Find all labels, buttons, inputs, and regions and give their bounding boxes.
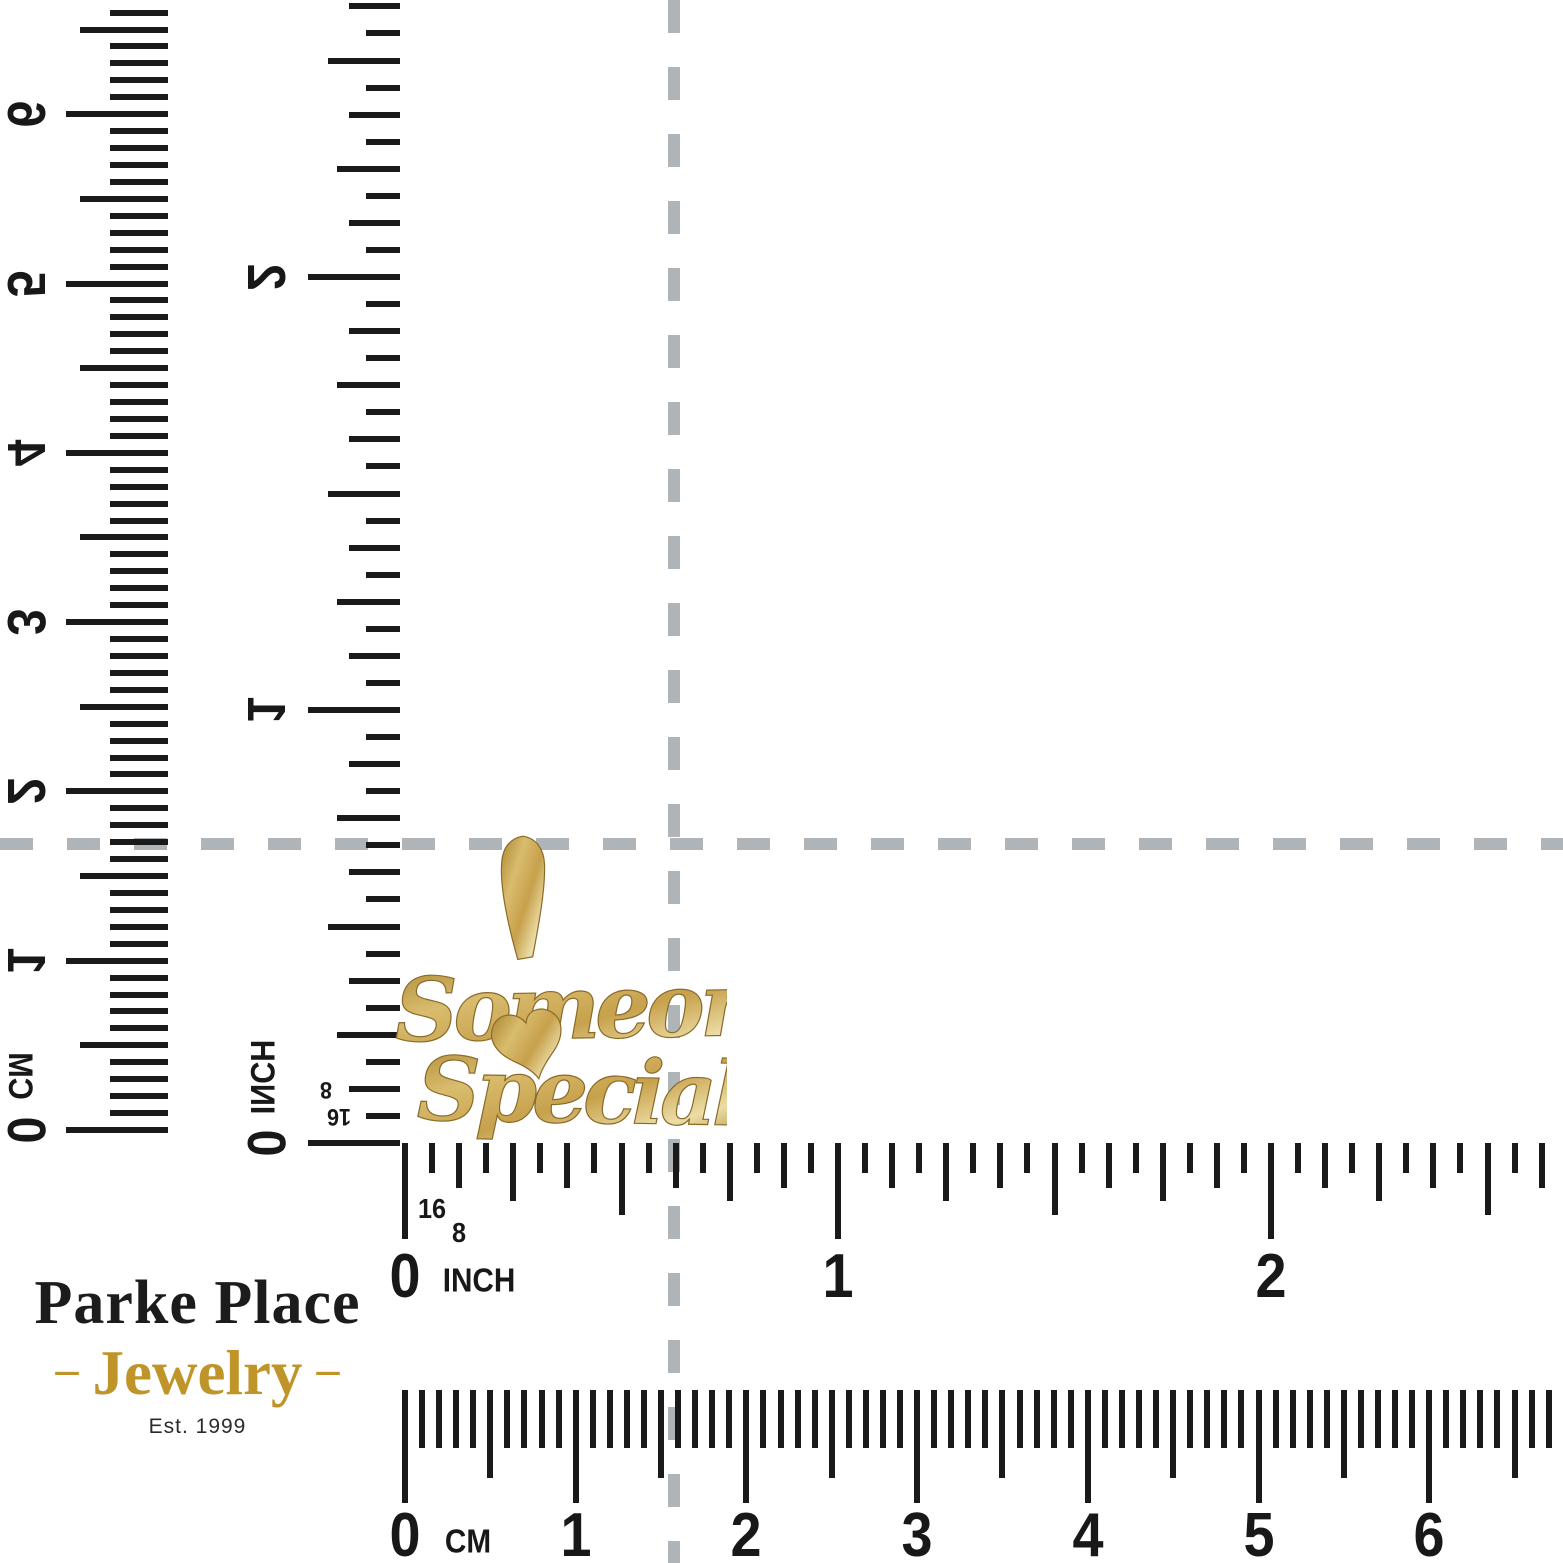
mm-tick xyxy=(110,297,168,303)
mm-tick xyxy=(110,213,168,219)
mm-tick xyxy=(658,1390,664,1478)
inch-tick xyxy=(308,707,400,713)
mm-tick xyxy=(726,1390,732,1448)
cm-tick xyxy=(914,1390,920,1503)
mm-tick xyxy=(110,924,168,930)
horizontal-cm-unit-label: CM xyxy=(445,1525,491,1558)
vertical-cm-number: 3 xyxy=(0,609,53,636)
fraction-tick xyxy=(1214,1143,1220,1188)
mm-tick xyxy=(1307,1390,1313,1448)
mm-tick xyxy=(1512,1390,1518,1478)
mm-tick xyxy=(1136,1390,1142,1448)
mm-tick xyxy=(1034,1390,1040,1448)
fraction-tick xyxy=(808,1143,814,1173)
mm-tick xyxy=(110,501,168,507)
fraction-tick xyxy=(349,112,400,118)
mm-tick xyxy=(692,1390,698,1448)
mm-tick xyxy=(110,653,168,659)
mm-tick xyxy=(110,382,168,388)
mm-tick xyxy=(1119,1390,1125,1448)
mm-tick xyxy=(110,94,168,100)
mm-tick xyxy=(110,890,168,896)
mm-tick xyxy=(1051,1390,1057,1448)
mm-tick xyxy=(110,975,168,981)
mm-tick xyxy=(1529,1390,1535,1448)
pendant-word-special: Special xyxy=(416,1037,727,1147)
horizontal-cm-number: 3 xyxy=(902,1505,933,1563)
mm-tick xyxy=(948,1390,954,1448)
fraction-tick xyxy=(781,1143,787,1188)
mm-tick xyxy=(110,10,168,16)
fraction-tick xyxy=(337,815,400,821)
mm-tick xyxy=(829,1390,835,1478)
fraction-tick xyxy=(349,653,400,659)
cm-tick xyxy=(66,619,168,625)
mm-tick xyxy=(110,738,168,744)
mm-tick xyxy=(110,348,168,354)
fraction-tick xyxy=(1160,1143,1166,1201)
vertical-inch-eighth-label: 8 xyxy=(320,1077,332,1101)
fraction-tick xyxy=(337,599,400,605)
mm-tick xyxy=(931,1390,937,1448)
mm-tick xyxy=(80,196,168,202)
mm-tick xyxy=(556,1390,562,1448)
mm-tick xyxy=(641,1390,647,1448)
mm-tick xyxy=(965,1390,971,1448)
fraction-tick xyxy=(1241,1143,1247,1173)
mm-tick xyxy=(110,822,168,828)
mm-tick xyxy=(110,247,168,253)
mm-tick xyxy=(110,467,168,473)
mm-tick xyxy=(110,43,168,49)
fraction-tick xyxy=(1024,1143,1030,1173)
mm-tick xyxy=(110,1110,168,1116)
mm-tick xyxy=(1324,1390,1330,1448)
brand-logo: Parke Place –Jewelry– Est. 1999 xyxy=(25,1272,370,1439)
mm-tick xyxy=(1392,1390,1398,1448)
vertical-cm-number: 1 xyxy=(0,947,53,974)
horizontal-cm-number: 0 xyxy=(389,1505,420,1563)
mm-tick xyxy=(880,1390,886,1448)
mm-tick xyxy=(1170,1390,1176,1478)
mm-tick xyxy=(675,1390,681,1448)
fraction-tick xyxy=(366,355,400,361)
mm-tick xyxy=(897,1390,903,1448)
fraction-tick xyxy=(1376,1143,1382,1201)
mm-tick xyxy=(1204,1390,1210,1448)
mm-tick xyxy=(110,331,168,337)
mm-tick xyxy=(110,60,168,66)
fraction-tick xyxy=(349,328,400,334)
mm-tick xyxy=(110,399,168,405)
fraction-tick xyxy=(328,924,400,930)
fraction-tick xyxy=(1485,1143,1491,1215)
vertical-cm-number: 5 xyxy=(0,270,53,297)
horizontal-inch-number: 0 xyxy=(389,1246,420,1308)
fraction-tick xyxy=(366,572,400,578)
cm-tick xyxy=(573,1390,579,1503)
mm-tick xyxy=(110,162,168,168)
fraction-tick xyxy=(366,301,400,307)
horizontal-cm-number: 6 xyxy=(1414,1505,1445,1563)
fraction-tick xyxy=(349,545,400,551)
horizontal-cm-number: 5 xyxy=(1243,1505,1274,1563)
fraction-tick xyxy=(1322,1143,1328,1188)
mm-tick xyxy=(1494,1390,1500,1448)
horizontal-cm-number: 2 xyxy=(731,1505,762,1563)
fraction-tick xyxy=(366,518,400,524)
horizontal-inch-eighth-label: 8 xyxy=(452,1219,466,1247)
mm-tick xyxy=(110,1093,168,1099)
mm-tick xyxy=(110,585,168,591)
mm-tick xyxy=(436,1390,442,1448)
mm-tick xyxy=(1273,1390,1279,1448)
vertical-inch-sixteenth-label: 16 xyxy=(327,1104,351,1128)
fraction-tick xyxy=(337,382,400,388)
subtitle-word: Jewelry xyxy=(93,1338,303,1408)
fraction-tick xyxy=(366,463,400,469)
mm-tick xyxy=(110,484,168,490)
mm-tick xyxy=(80,534,168,540)
fraction-tick xyxy=(1133,1143,1139,1173)
mm-tick xyxy=(110,687,168,693)
mm-tick xyxy=(1102,1390,1108,1448)
mm-tick xyxy=(110,145,168,151)
horizontal-inch-number: 1 xyxy=(822,1246,853,1308)
cm-tick xyxy=(66,450,168,456)
mm-tick xyxy=(110,77,168,83)
fraction-tick xyxy=(366,626,400,632)
mm-tick xyxy=(1358,1390,1364,1448)
mm-tick xyxy=(110,230,168,236)
mm-tick xyxy=(521,1390,527,1448)
fraction-tick xyxy=(862,1143,868,1173)
mm-tick xyxy=(110,636,168,642)
mm-tick xyxy=(419,1390,425,1448)
mm-tick xyxy=(110,907,168,913)
brand-name: Parke Place xyxy=(25,1272,370,1334)
fraction-tick xyxy=(349,3,400,9)
mm-tick xyxy=(709,1390,715,1448)
cm-tick xyxy=(1256,1390,1262,1503)
fraction-tick xyxy=(889,1143,895,1188)
vertical-inch-number: 2 xyxy=(239,263,293,290)
mm-tick xyxy=(80,1042,168,1048)
vertical-cm-number: 6 xyxy=(0,101,53,128)
mm-tick xyxy=(1187,1390,1193,1448)
mm-tick xyxy=(110,518,168,524)
fraction-tick xyxy=(1512,1143,1518,1173)
mm-tick xyxy=(1477,1390,1483,1448)
cm-tick xyxy=(66,788,168,794)
mm-tick xyxy=(80,873,168,879)
subtitle-right-dash: – xyxy=(316,1343,339,1394)
cm-tick xyxy=(66,281,168,287)
mm-tick xyxy=(110,416,168,422)
vertical-cm-number: 2 xyxy=(0,778,53,805)
mm-tick xyxy=(1017,1390,1023,1448)
mm-tick xyxy=(110,721,168,727)
mm-tick xyxy=(607,1390,613,1448)
fraction-tick xyxy=(1539,1143,1545,1188)
mm-tick xyxy=(539,1390,545,1448)
fraction-tick xyxy=(366,30,400,36)
fraction-tick xyxy=(337,166,400,172)
mm-tick xyxy=(110,264,168,270)
fraction-tick xyxy=(1187,1143,1193,1173)
fraction-tick xyxy=(997,1143,1003,1188)
mm-tick xyxy=(110,839,168,845)
mm-tick xyxy=(110,941,168,947)
mm-tick xyxy=(1290,1390,1296,1448)
fraction-tick xyxy=(328,58,400,64)
mm-tick xyxy=(110,1025,168,1031)
fraction-tick xyxy=(366,139,400,145)
subtitle-left-dash: – xyxy=(56,1343,79,1394)
mm-tick xyxy=(110,433,168,439)
horizontal-cm-number: 4 xyxy=(1072,1505,1103,1563)
mm-tick xyxy=(80,365,168,371)
fraction-tick xyxy=(754,1143,760,1173)
mm-tick xyxy=(110,992,168,998)
mm-tick xyxy=(110,551,168,557)
mm-tick xyxy=(110,568,168,574)
mm-tick xyxy=(110,179,168,185)
fraction-tick xyxy=(1349,1143,1355,1173)
mm-tick xyxy=(778,1390,784,1448)
fraction-tick xyxy=(1079,1143,1085,1173)
horizontal-inch-unit-label: INCH xyxy=(443,1264,516,1297)
horizontal-inch-number: 2 xyxy=(1255,1246,1286,1308)
mm-tick xyxy=(1443,1390,1449,1448)
fraction-tick xyxy=(727,1143,733,1201)
fraction-tick xyxy=(349,220,400,226)
fraction-tick xyxy=(349,436,400,442)
cm-tick xyxy=(1085,1390,1091,1503)
mm-tick xyxy=(110,670,168,676)
fraction-tick xyxy=(1403,1143,1409,1173)
mm-tick xyxy=(982,1390,988,1448)
mm-tick xyxy=(110,602,168,608)
mm-tick xyxy=(80,704,168,710)
mm-tick xyxy=(1068,1390,1074,1448)
fraction-tick xyxy=(1295,1143,1301,1173)
mm-tick xyxy=(80,27,168,33)
fraction-tick xyxy=(337,1032,400,1038)
cm-tick xyxy=(66,1127,168,1133)
mm-tick xyxy=(795,1390,801,1448)
mm-tick xyxy=(1375,1390,1381,1448)
vertical-inch-unit-label: INCH xyxy=(245,1040,279,1115)
mm-tick xyxy=(110,755,168,761)
mm-tick xyxy=(110,1059,168,1065)
mm-tick xyxy=(999,1390,1005,1478)
mm-tick xyxy=(846,1390,852,1448)
pendant-image: Someone Special xyxy=(392,826,727,1161)
fraction-tick xyxy=(366,247,400,253)
mm-tick xyxy=(453,1390,459,1448)
fraction-tick xyxy=(349,761,400,767)
fraction-tick xyxy=(970,1143,976,1173)
fraction-tick xyxy=(1106,1143,1112,1188)
inch-tick xyxy=(308,274,400,280)
mm-tick xyxy=(1153,1390,1159,1448)
mm-tick xyxy=(504,1390,510,1448)
vertical-inch-number: 1 xyxy=(239,696,293,723)
mm-tick xyxy=(110,1008,168,1014)
mm-tick xyxy=(110,1076,168,1082)
mm-tick xyxy=(1341,1390,1347,1478)
brand-subtitle: –Jewelry– xyxy=(25,1342,370,1405)
mm-tick xyxy=(470,1390,476,1448)
mm-tick xyxy=(1460,1390,1466,1448)
fraction-tick xyxy=(1430,1143,1436,1188)
mm-tick xyxy=(1238,1390,1244,1448)
inch-tick xyxy=(308,1140,400,1146)
mm-tick xyxy=(110,805,168,811)
fraction-tick xyxy=(1052,1143,1058,1215)
vertical-cm-number: 0 xyxy=(0,1116,53,1143)
product-photo-canvas: 0123456CM012INCH816012INCH1680123456CM S… xyxy=(0,0,1563,1563)
fraction-tick xyxy=(328,491,400,497)
mm-tick xyxy=(110,128,168,134)
fraction-tick xyxy=(366,193,400,199)
fraction-tick xyxy=(1457,1143,1463,1173)
vertical-cm-number: 4 xyxy=(0,439,53,466)
mm-tick xyxy=(1409,1390,1415,1448)
inch-tick xyxy=(835,1143,841,1239)
mm-tick xyxy=(110,856,168,862)
mm-tick xyxy=(110,771,168,777)
brand-established: Est. 1999 xyxy=(25,1415,370,1439)
fraction-tick xyxy=(366,734,400,740)
mm-tick xyxy=(760,1390,766,1448)
mm-tick xyxy=(1546,1390,1552,1448)
fraction-tick xyxy=(366,680,400,686)
inch-tick xyxy=(1268,1143,1274,1239)
fraction-tick xyxy=(916,1143,922,1173)
fraction-tick xyxy=(366,85,400,91)
mm-tick xyxy=(110,314,168,320)
mm-tick xyxy=(812,1390,818,1448)
pendant-bail xyxy=(500,835,548,959)
cm-tick xyxy=(402,1390,408,1503)
fraction-tick xyxy=(366,788,400,794)
cm-tick xyxy=(66,958,168,964)
horizontal-cm-number: 1 xyxy=(560,1505,591,1563)
fraction-tick xyxy=(366,409,400,415)
fraction-tick xyxy=(943,1143,949,1201)
cm-tick xyxy=(1426,1390,1432,1503)
cm-tick xyxy=(66,111,168,117)
mm-tick xyxy=(624,1390,630,1448)
horizontal-inch-sixteenth-label: 16 xyxy=(418,1195,446,1223)
vertical-inch-number: 0 xyxy=(239,1129,293,1156)
mm-tick xyxy=(863,1390,869,1448)
vertical-cm-unit-label: CM xyxy=(3,1052,37,1100)
mm-tick xyxy=(1221,1390,1227,1448)
mm-tick xyxy=(590,1390,596,1448)
cm-tick xyxy=(743,1390,749,1503)
mm-tick xyxy=(487,1390,493,1478)
